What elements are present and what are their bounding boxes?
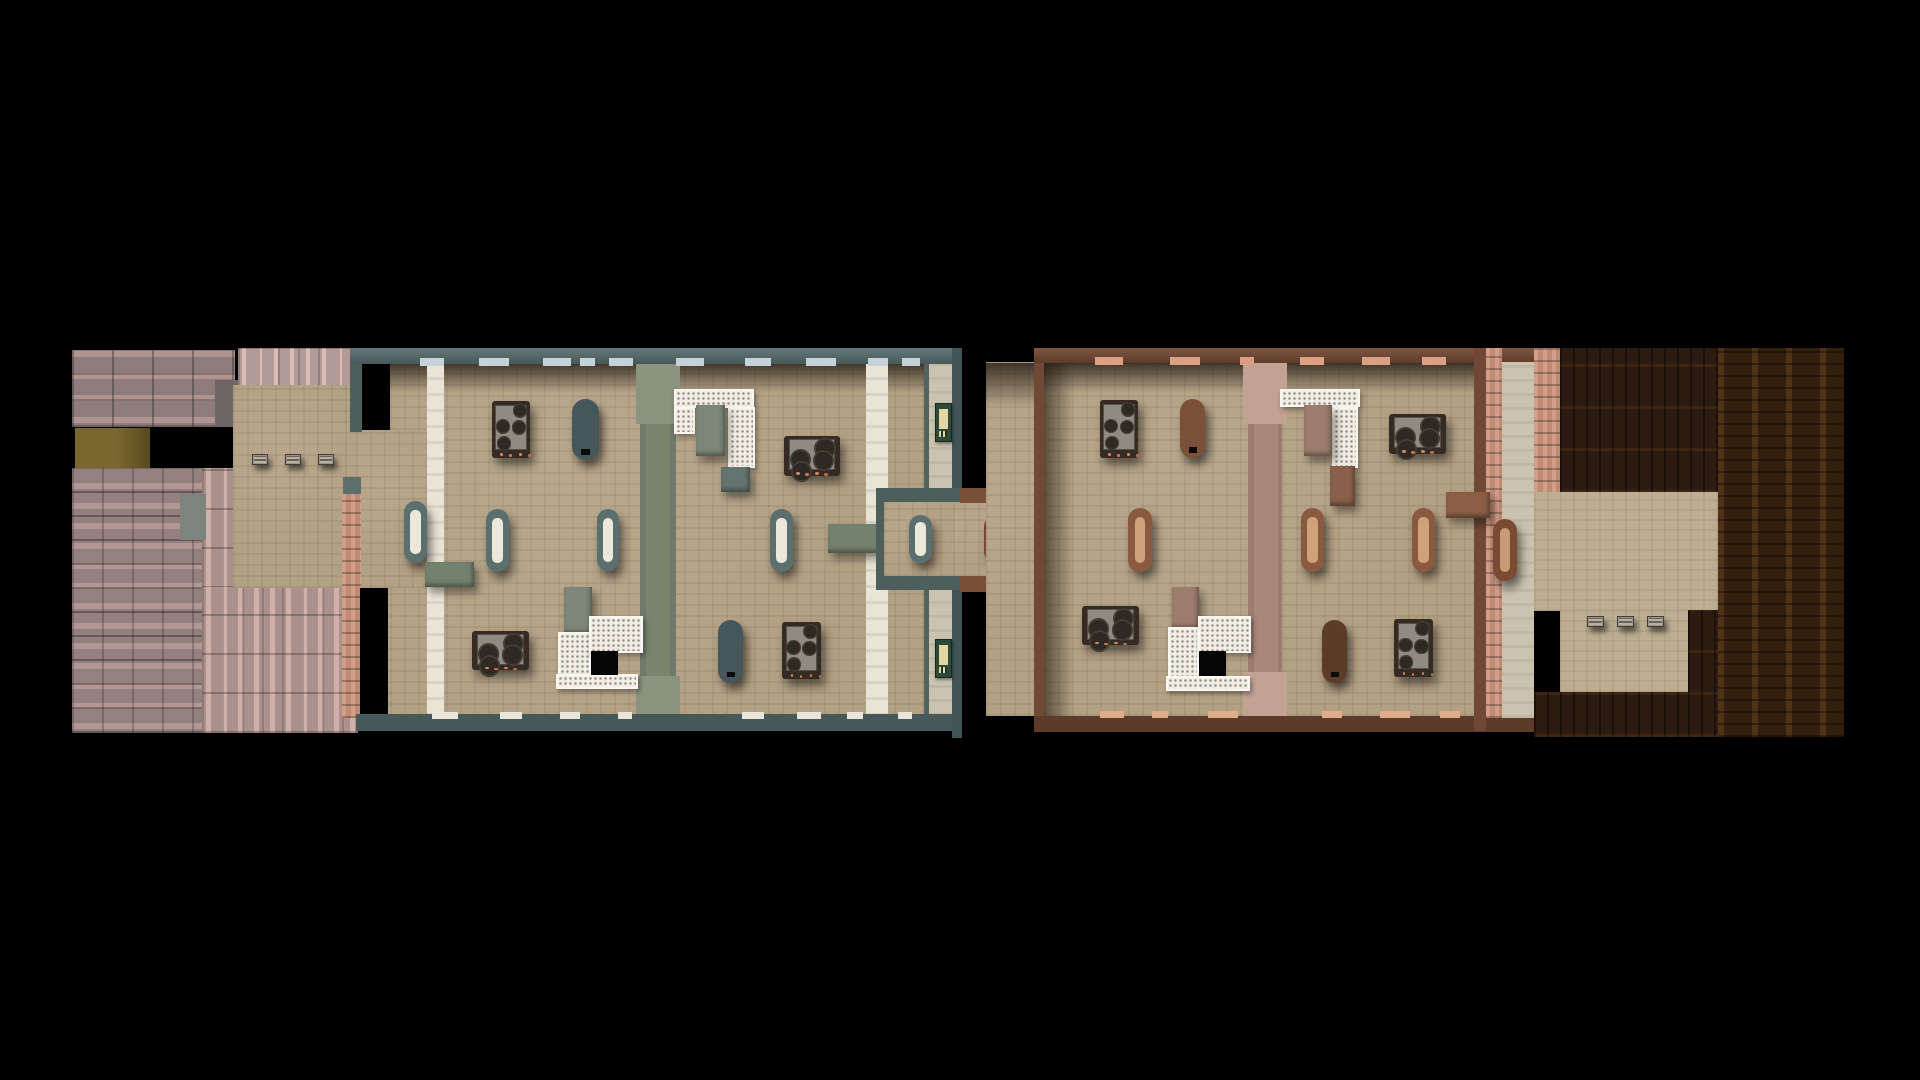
west-bench-2 [285,454,301,465]
blu-black-pocket-south [360,588,388,714]
blu-window [420,358,444,366]
bed-mattress [776,518,786,563]
blu-stair-grate [558,632,591,679]
red-cabinet-se [1322,620,1347,683]
blu-bed-west-mid2 [597,509,619,571]
blu-window [479,358,509,366]
red-window [1095,357,1123,365]
east-wood-roof-south [1534,692,1688,737]
stove-burner [1112,619,1134,641]
blu-exit-sign-south [935,639,952,678]
west-roof-upper-east [238,348,356,388]
blu-walkway-west [427,362,444,716]
red-stair-ramp-south [1172,587,1199,629]
bed-mattress [603,518,613,563]
red-window-south [1100,711,1124,718]
red-stove-ne [1389,414,1446,454]
stove-burner [1121,402,1135,416]
west-courtyard-shadow [233,395,297,588]
blu-shadow-column [676,466,690,582]
blu-black-pocket-north [362,364,390,430]
red-wall-spur-east [1446,492,1490,518]
red-corridor-inner [1254,424,1278,672]
east-bench-2 [1617,616,1634,627]
blu-exit-sign-north [935,403,952,442]
blu-window-south [560,712,580,719]
blu-window-south [898,712,912,719]
west-bench-3 [318,454,334,465]
red-wall-east [1474,348,1486,731]
red-window-south [1208,711,1238,718]
stove-burner [791,461,812,482]
blu-stove-sw [472,631,529,670]
stove-burner [786,640,801,655]
blu-window-south [618,712,632,719]
red-stove-se [1394,619,1433,677]
red-entry-shadow [986,363,1034,407]
bed-mattress [1135,517,1146,563]
blu-stair-grate [589,616,643,653]
blu-stair-grate [556,674,638,689]
blu-bed-entry [404,501,427,563]
east-brick-column-b [1534,348,1560,494]
east-bench-1 [1587,616,1604,627]
blu-stair-grate-north [674,407,695,434]
stove-burner [1089,630,1111,652]
blu-stove-nw [492,401,530,458]
red-window [1300,357,1324,365]
blu-stove-se [782,622,821,679]
stove-burner [803,624,818,639]
blu-wall-piece [721,467,750,492]
red-bed-east-mid [1412,508,1435,572]
center-blu-bed [909,515,932,563]
red-bed-mid [1301,508,1324,572]
center-blu-room-wall-n [876,488,960,502]
bed-mattress [1418,517,1428,563]
red-wall-piece [1330,466,1355,506]
blu-stair-ramp-south [564,587,592,634]
west-rubble-mid [202,468,233,588]
red-entry-column [986,362,1034,716]
bed-mattress [492,518,502,563]
east-courtyard-shadow [1534,524,1624,566]
red-wall-south [1034,716,1534,732]
red-window [1240,357,1254,365]
red-west-shadow [1044,363,1074,716]
blu-window [609,358,633,366]
bed-mattress [410,510,420,555]
east-bench-3 [1647,616,1664,627]
west-roof-upper [72,350,235,427]
bed-mattress [1500,528,1511,573]
west-rubble-south [202,587,358,733]
blu-bed-west-mid [486,509,509,572]
east-walkway-bed [1493,519,1517,581]
west-brick-column [342,494,361,718]
blu-stove-ne [784,436,840,476]
stove-burner [513,403,527,417]
red-wall-west [1034,348,1044,731]
red-window-south [1380,711,1410,718]
blu-window [902,358,920,366]
stove-burner [1415,621,1430,636]
blu-window-south [797,712,821,719]
stove-burner [512,420,526,434]
red-window-south [1152,711,1168,718]
east-wood-roof-east [1718,348,1844,737]
map-canvas [0,0,1920,1080]
red-bed-west-mid [1128,508,1152,572]
west-bench-1 [252,454,268,465]
blu-window-south [500,712,522,719]
red-window-south [1440,711,1460,718]
east-wood-roof-nw [1560,348,1718,493]
blu-window-south [432,712,458,719]
blu-cabinet-nw [572,399,599,460]
west-hole [150,427,233,468]
stove-burner [1414,639,1429,654]
bed-mattress [915,522,925,557]
stove-burner [502,644,524,666]
blu-window-south [847,712,863,719]
red-window [1422,357,1446,365]
east-courtyard-shadow-band [1534,492,1718,524]
stove-burner [1399,655,1414,670]
blu-window [543,358,571,366]
stove-burner [497,436,511,450]
blu-stair-ramp-north [696,405,725,456]
red-stove-nw [1100,400,1138,458]
blu-cabinet-se [718,620,743,683]
red-stair-grate [1166,676,1250,691]
center-blu-room-wall-w [876,488,884,590]
stove-burner [479,655,501,677]
red-stove-sw [1082,606,1139,645]
red-stair-ramp-north [1304,405,1332,456]
stove-burner [1398,638,1413,653]
stove-burner [1104,419,1118,433]
blu-window-south [742,712,764,719]
red-cabinet-nw [1180,399,1205,458]
blu-bed-east-mid [770,509,793,572]
blu-corridor-door-shadow [660,508,676,564]
stove-burner [496,419,510,433]
blu-wall-west-frag [343,477,361,494]
gold-floor-patch [75,428,151,468]
west-courtyard-shadow-top [233,385,356,403]
blu-wall-west-upper [350,362,362,432]
red-window-south [1322,711,1342,718]
blu-window [745,358,771,366]
red-stair-grate-north [1332,407,1358,468]
red-stairwell-hole [1199,651,1226,676]
blu-window [580,358,595,366]
red-window [1170,357,1200,365]
blu-window [676,358,704,366]
game-map-overhead-view [0,0,1920,1080]
blu-wall-spur-west [425,562,474,587]
blu-stair-grate-north [728,407,755,468]
center-blu-room-wall-s [876,576,960,590]
blu-stairwell-hole [591,651,618,675]
red-stair-grate [1168,627,1199,678]
bed-mattress [1307,517,1317,563]
red-stair-grate [1198,616,1251,653]
red-window [1362,357,1390,365]
east-wood-filler [1688,610,1718,737]
blu-window [806,358,836,366]
blu-window [868,358,888,366]
fallen-wall-slab [180,494,206,540]
